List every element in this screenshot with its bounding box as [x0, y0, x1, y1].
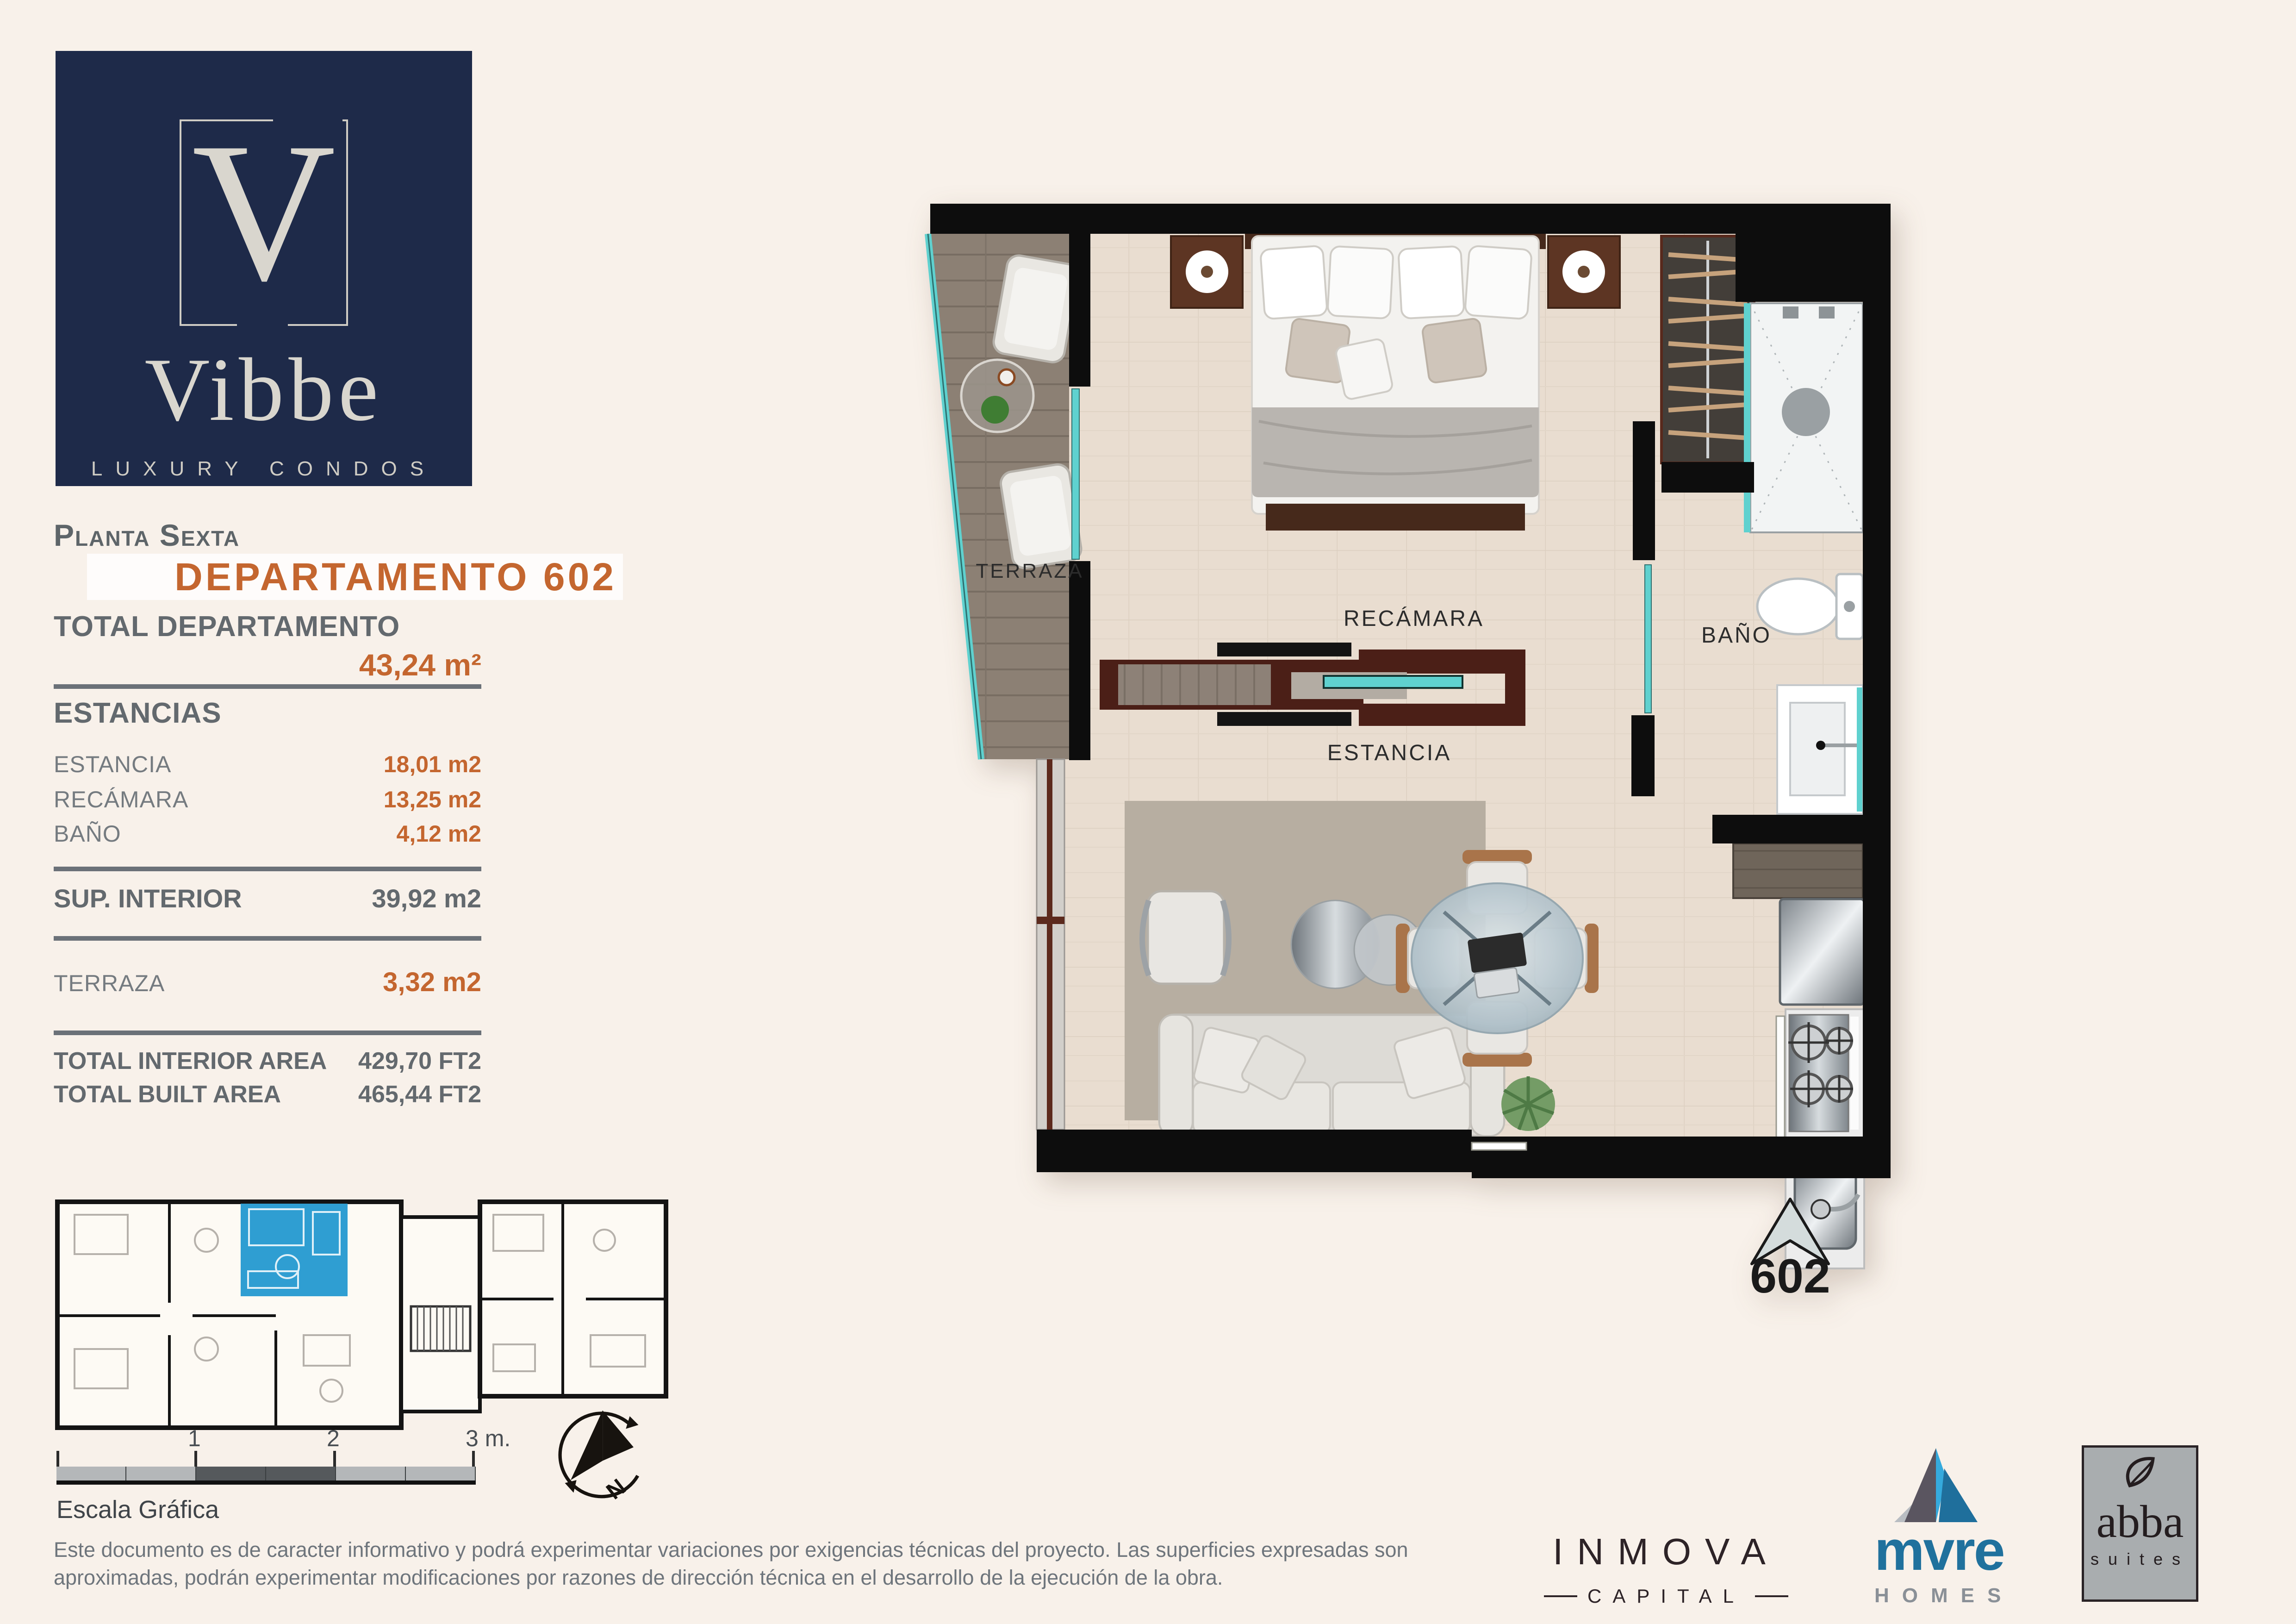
- brand-tagline: LUXURY CONDOS: [56, 457, 472, 481]
- nightstand: [1548, 236, 1620, 308]
- total-row: TOTAL BUILT AREA 465,44 FT2: [54, 1081, 481, 1108]
- total-departamento-value: 43,24 m²: [359, 647, 481, 682]
- armchair: [1142, 891, 1229, 984]
- sup-interior-row: SUP. INTERIOR 39,92 m2: [54, 883, 481, 913]
- total-departamento-label: TOTAL DEPARTAMENTO: [54, 610, 400, 643]
- room-label-terraza: TERRAZA: [976, 560, 1083, 582]
- scale-tick-label: 1: [188, 1425, 201, 1452]
- mvre-mountain-icon: [1881, 1448, 1979, 1524]
- total-interior-value: 429,70 FT2: [358, 1047, 481, 1075]
- window-wall: [1037, 759, 1064, 1130]
- total-interior-label: TOTAL INTERIOR AREA: [54, 1047, 327, 1075]
- terraza-value: 3,32 m2: [383, 967, 481, 998]
- divider: [54, 684, 481, 689]
- inmova-name: INMOVA: [1523, 1530, 1810, 1573]
- scale-band: [56, 1467, 476, 1480]
- key-plan-highlighted-unit: [241, 1204, 348, 1296]
- divider: [54, 1031, 481, 1035]
- room-label-estancia: ESTANCIA: [1327, 741, 1451, 765]
- area-row-value: 4,12 m2: [397, 820, 481, 847]
- total-row: TOTAL INTERIOR AREA 429,70 FT2: [54, 1047, 481, 1075]
- north-label: N: [601, 1474, 630, 1504]
- area-row: RECÁMARA 13,25 m2: [54, 786, 481, 813]
- room-label-recamara: RECÁMARA: [1344, 606, 1484, 631]
- unit-marker-number: 602: [1750, 1249, 1830, 1296]
- brand-name: Vibbe: [56, 338, 472, 442]
- mvre-homes-logo: mvre HOMES: [1874, 1448, 1985, 1607]
- building-key-plan: [54, 1196, 670, 1431]
- terraza-lounge-chair: [999, 463, 1083, 570]
- abba-name: abba: [2084, 1497, 2196, 1546]
- floor-title: Planta Sexta: [54, 518, 516, 553]
- scale-caption: Escala Gráfica: [56, 1495, 219, 1524]
- area-row-label: BAÑO: [54, 820, 121, 847]
- logo-v-frame: V: [180, 119, 348, 326]
- logo-v-letter: V: [181, 103, 346, 322]
- toilet: [1757, 574, 1863, 639]
- estancias-section-label: ESTANCIAS: [54, 697, 222, 730]
- abba-leaf-icon: [2119, 1452, 2161, 1495]
- terraza-row: TERRAZA 3,32 m2: [54, 967, 481, 998]
- terraza-lounge-chair: [992, 254, 1080, 364]
- abba-sub-label: suites: [2084, 1549, 2196, 1569]
- brand-logo: V Vibbe LUXURY CONDOS: [56, 51, 472, 486]
- sofa: [1159, 1015, 1504, 1136]
- bed: [1245, 232, 1546, 531]
- disclaimer-text: Este documento es de caracter informativ…: [54, 1536, 1502, 1592]
- mvre-sub-label: HOMES: [1874, 1584, 1985, 1607]
- sup-interior-label: SUP. INTERIOR: [54, 883, 242, 913]
- terraza-label: TERRAZA: [54, 970, 165, 997]
- area-row: BAÑO 4,12 m2: [54, 820, 481, 847]
- brochure-page: V Vibbe LUXURY CONDOS Planta Sexta DEPAR…: [0, 0, 2296, 1624]
- mvre-name: mvre: [1874, 1527, 1985, 1575]
- apartment-floorplan: TERRAZA RECÁMARA BAÑO ESTANCIA 602: [921, 204, 1893, 1296]
- total-built-label: TOTAL BUILT AREA: [54, 1081, 281, 1108]
- inmova-sub-label: CAPITAL: [1587, 1585, 1745, 1607]
- sup-interior-value: 39,92 m2: [372, 883, 481, 913]
- nightstand: [1171, 236, 1243, 308]
- area-row-label: RECÁMARA: [54, 786, 188, 813]
- room-label-bano: BAÑO: [1701, 623, 1772, 648]
- inmova-dash-right: [1755, 1595, 1788, 1597]
- divider: [54, 867, 481, 871]
- graphic-scale: 1 2 3 m. Escala Gráfica: [56, 1425, 589, 1527]
- terraza-table: [961, 360, 1033, 432]
- inmova-dash-left: [1544, 1595, 1577, 1597]
- area-row-value: 13,25 m2: [384, 786, 481, 813]
- unit-title-band: DEPARTAMENTO 602: [87, 554, 623, 600]
- unit-title: DEPARTAMENTO 602: [81, 554, 616, 600]
- bathroom-vanity: [1777, 685, 1863, 814]
- scale-tick-label: 2: [327, 1425, 340, 1452]
- total-built-value: 465,44 FT2: [358, 1081, 481, 1108]
- area-row: ESTANCIA 18,01 m2: [54, 751, 481, 778]
- area-row-value: 18,01 m2: [384, 751, 481, 778]
- inmova-capital-logo: INMOVA CAPITAL: [1523, 1530, 1810, 1607]
- area-row-label: ESTANCIA: [54, 751, 171, 778]
- shower: [1744, 303, 1863, 532]
- abba-suites-logo: abba suites: [2082, 1445, 2198, 1602]
- divider: [54, 936, 481, 941]
- north-compass-icon: N: [548, 1404, 655, 1510]
